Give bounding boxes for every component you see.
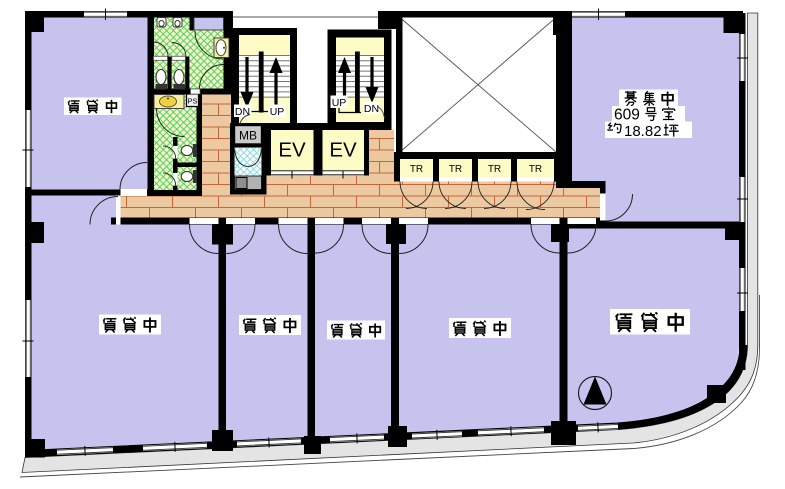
svg-text:TR: TR — [410, 164, 423, 175]
svg-text:TR: TR — [449, 164, 462, 175]
svg-text:18.82: 18.82 — [624, 123, 662, 140]
svg-text:UP: UP — [332, 97, 347, 109]
svg-text:MB: MB — [239, 129, 257, 143]
svg-text:TR: TR — [529, 164, 542, 175]
svg-text:TR: TR — [488, 164, 501, 175]
svg-text:PS: PS — [187, 97, 197, 106]
svg-text:EV: EV — [278, 139, 306, 162]
svg-text:EV: EV — [329, 139, 357, 162]
svg-text:609: 609 — [614, 106, 640, 123]
svg-text:DN: DN — [364, 103, 379, 115]
svg-text:DN: DN — [235, 106, 250, 118]
svg-text:UP: UP — [270, 106, 285, 118]
